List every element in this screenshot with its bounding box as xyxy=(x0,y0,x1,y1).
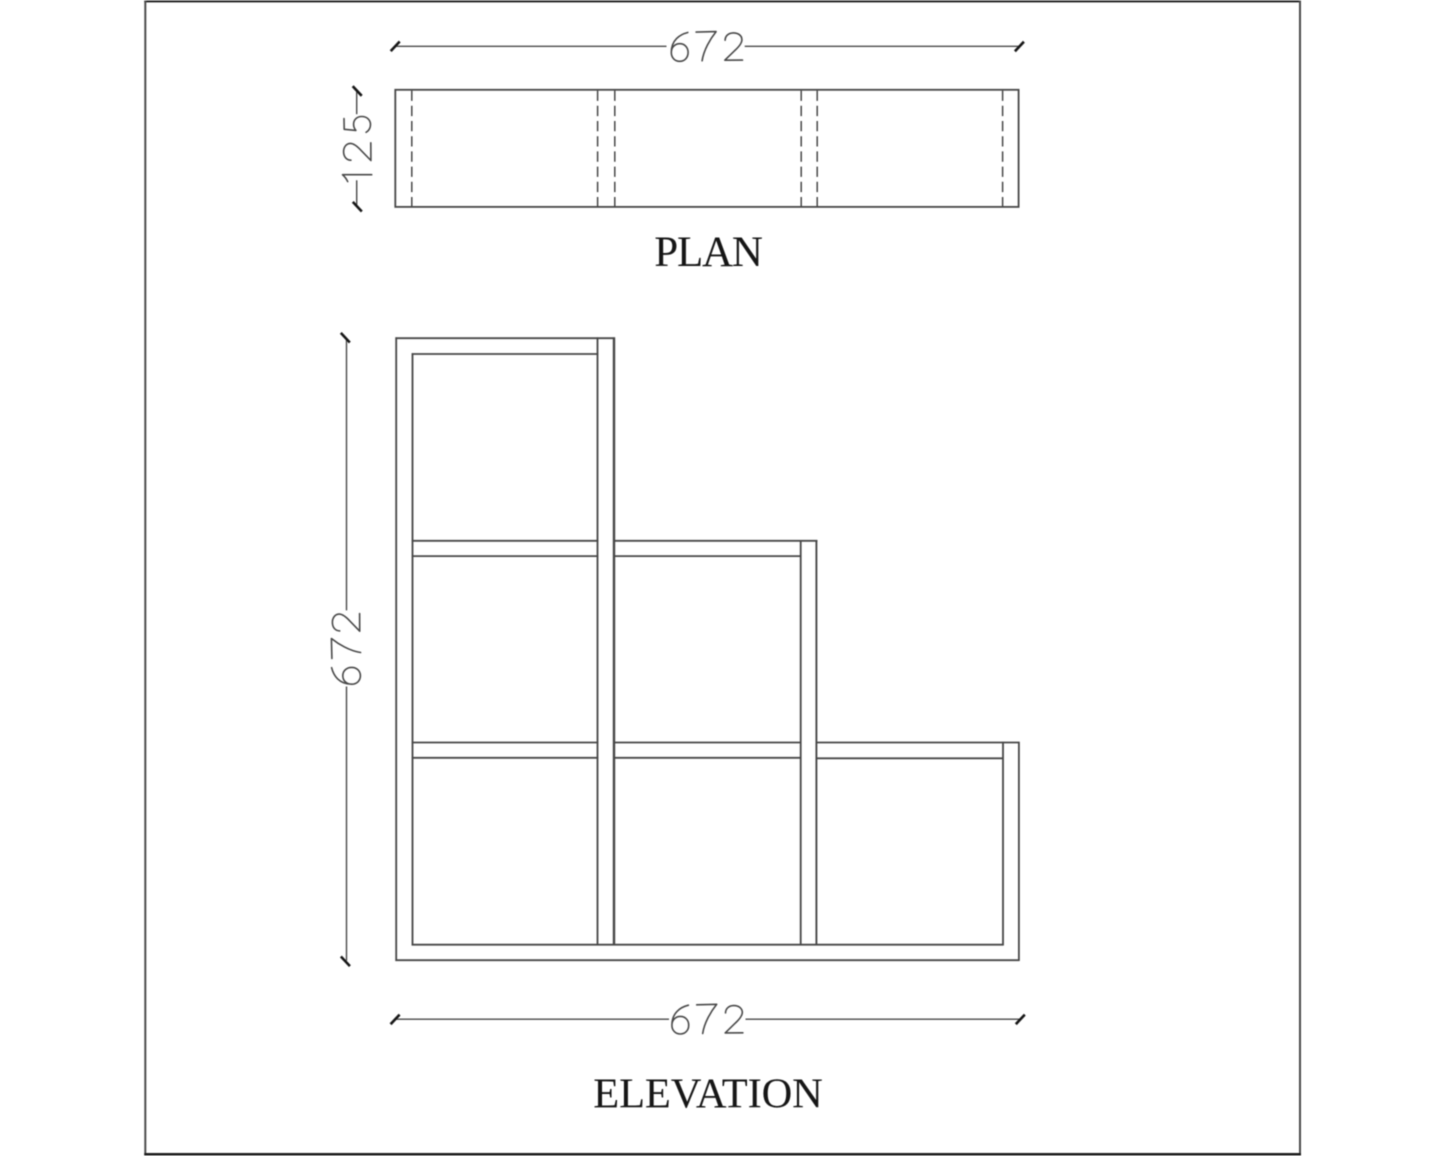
svg-text:ELEVATION: ELEVATION xyxy=(593,1071,823,1118)
svg-text:PLAN: PLAN xyxy=(654,229,763,276)
